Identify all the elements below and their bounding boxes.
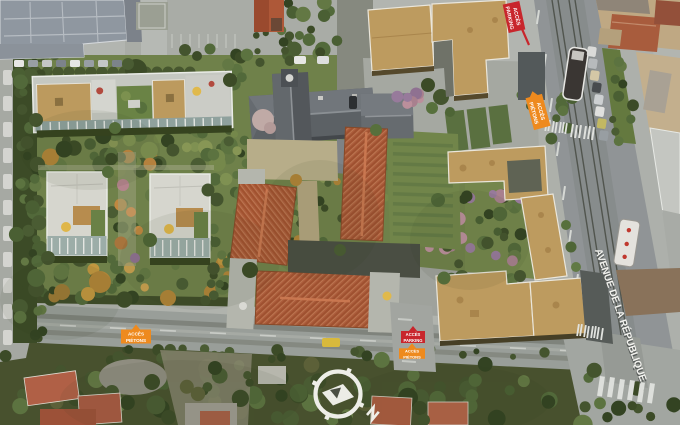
svg-text:PIÉTONS: PIÉTONS: [126, 336, 146, 343]
svg-text:ACCÈS: ACCÈS: [405, 348, 419, 353]
svg-text:ACCÈS: ACCÈS: [128, 329, 144, 336]
svg-text:PARKING: PARKING: [404, 338, 423, 343]
svg-text:ACCÈS: ACCÈS: [406, 332, 421, 337]
svg-text:PIÉTONS: PIÉTONS: [403, 354, 421, 359]
